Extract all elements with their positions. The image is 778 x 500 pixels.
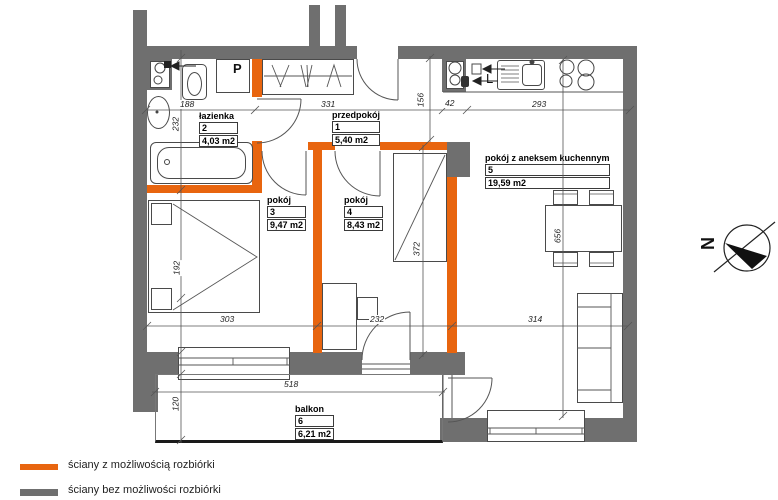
dim-331: 331 [320, 100, 336, 109]
bath-arrow [171, 62, 196, 70]
dim-232: 232 [172, 116, 181, 132]
sofa-lines [577, 293, 611, 403]
dim-303: 303 [219, 315, 235, 324]
bathtub-drain [165, 160, 170, 165]
dim-line-middle [143, 322, 632, 330]
dim-314: 314 [527, 315, 543, 324]
burner-1 [560, 60, 574, 74]
legend-swatch-demolishable [20, 464, 58, 470]
dim-line-hall [426, 54, 434, 144]
north-label: N [698, 237, 718, 250]
dim-293: 293 [531, 100, 547, 109]
legend-label-structural: ściany bez możliwości rozbiórki [68, 484, 221, 496]
kitchen-meter-2 [450, 75, 460, 85]
legend-swatch-structural [20, 489, 58, 496]
dim-518: 518 [283, 380, 299, 389]
dim-120: 120 [172, 396, 181, 412]
floor-plan: P L przedpokój 1 5,40 m2 łazienka 2 4,03… [0, 0, 778, 500]
dim-42: 42 [444, 99, 455, 108]
dim-232b: 232 [369, 315, 385, 324]
compass-needle-line [714, 222, 775, 272]
window-room3-mullions [178, 358, 290, 365]
entrance-door [357, 59, 398, 100]
hanger-symbols [264, 65, 352, 87]
room4-door [335, 151, 380, 196]
balcony-door-jambs [443, 375, 452, 418]
sink-drainer-lines [501, 66, 519, 82]
dim-372: 372 [413, 241, 422, 257]
room3-door [262, 151, 306, 195]
dim-line-left [177, 50, 185, 444]
dim-156: 156 [417, 92, 426, 108]
dim-656: 656 [554, 228, 563, 244]
kitchen-valve-box [472, 64, 481, 74]
bath-valve [164, 61, 171, 68]
kitchen-meter-1 [449, 62, 461, 74]
bathroom-door [257, 99, 301, 143]
dim-192: 192 [173, 260, 182, 276]
bath-meter-2 [154, 76, 162, 84]
dim-188: 188 [179, 100, 195, 109]
dim-line-bottom [151, 388, 447, 396]
kitchen-valve-dark [461, 76, 469, 87]
bath-meter-1 [155, 63, 165, 73]
compass: N [698, 222, 775, 272]
bed-cover-lines [173, 204, 257, 310]
kitchen-arrow-2 [473, 77, 498, 85]
dim-line-top [142, 106, 634, 114]
sink-drain-dot [156, 111, 159, 114]
room4-door-sill [362, 364, 410, 369]
room5-balcony-door [448, 378, 492, 422]
burner-3 [560, 75, 572, 87]
faucet-dot [530, 60, 535, 65]
linework-layer: N [0, 0, 778, 500]
window-room5-mullions [487, 428, 585, 434]
legend-label-demolishable: ściany z możliwością rozbiórki [68, 459, 215, 471]
